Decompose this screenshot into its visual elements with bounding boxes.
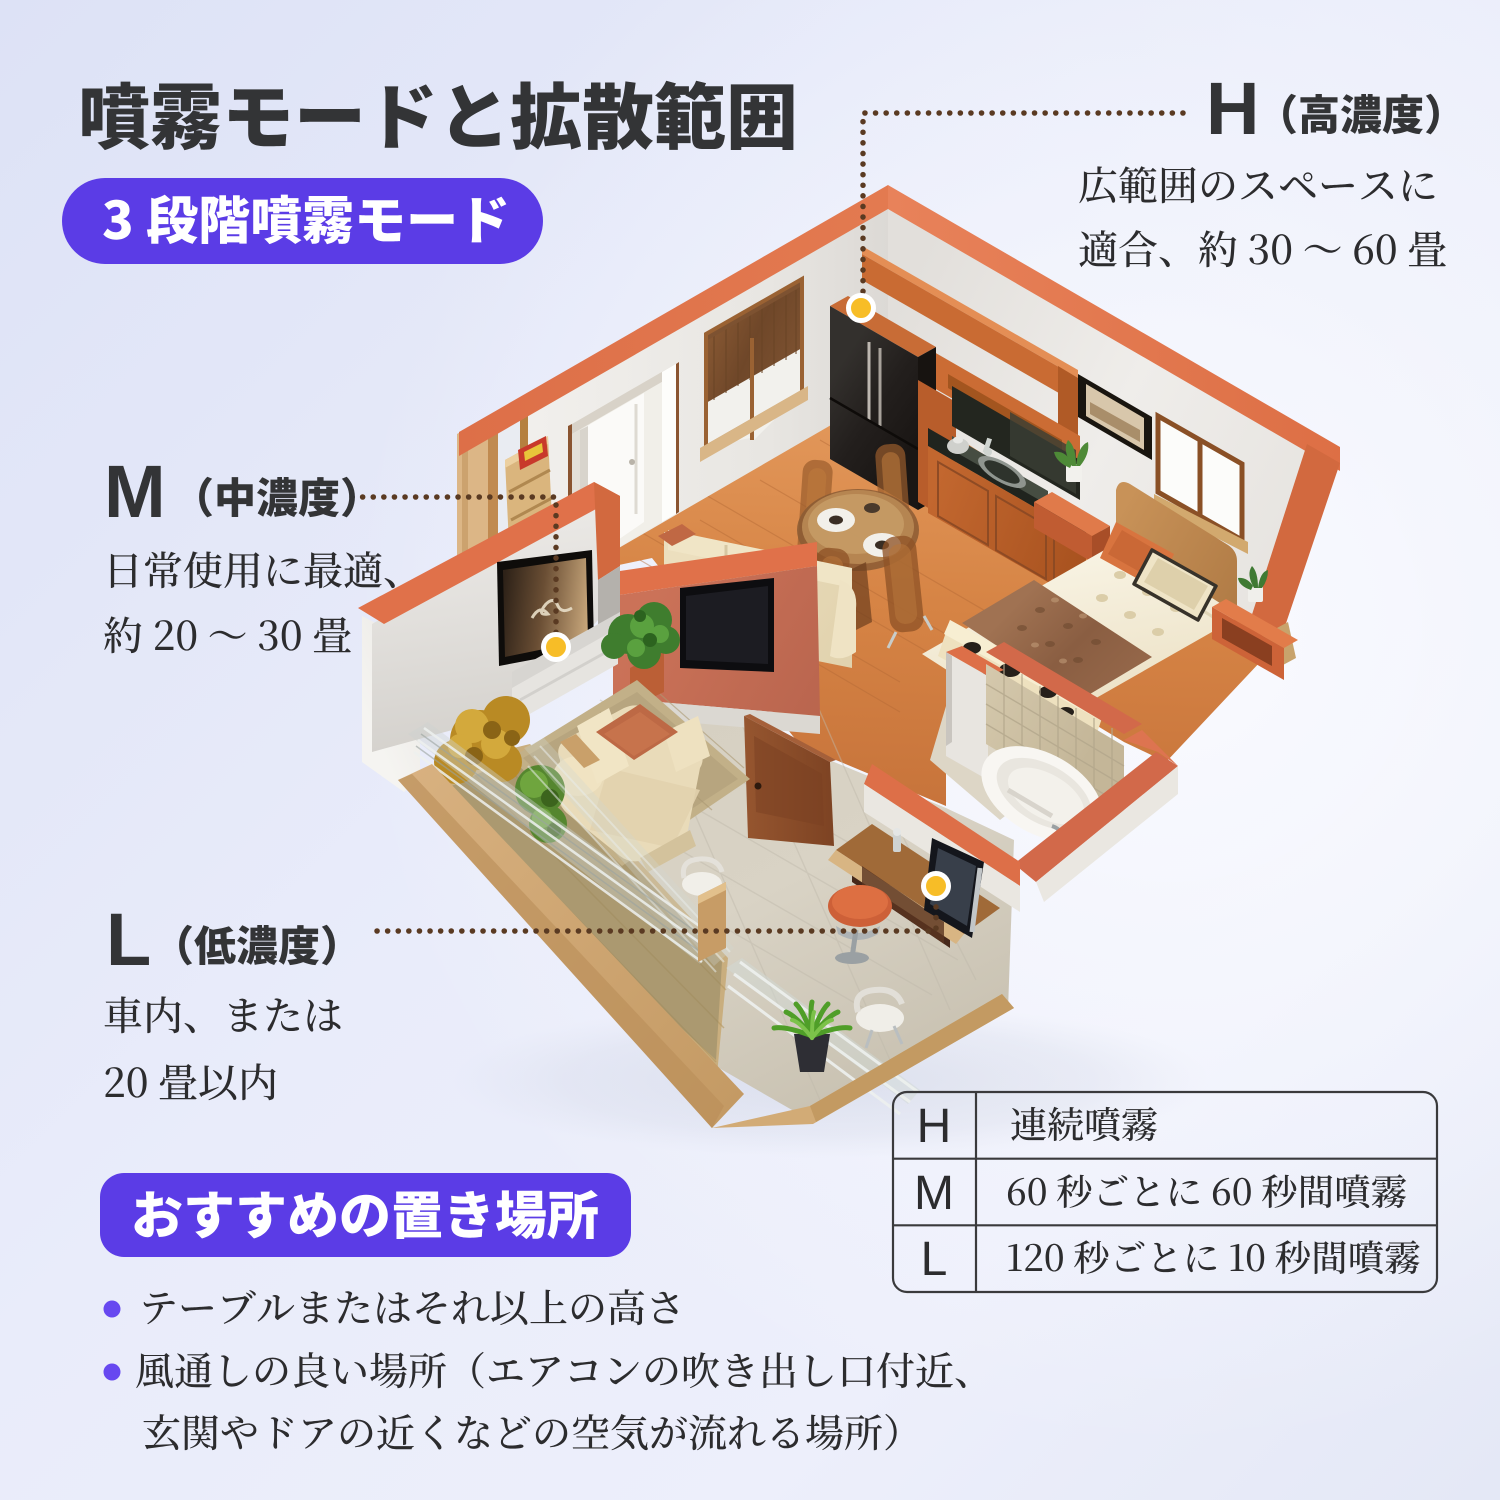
svg-text:L: L [921,1233,948,1286]
svg-text:H: H [1206,67,1259,150]
svg-text:M: M [104,450,166,533]
svg-text:H: H [917,1100,952,1153]
svg-text:L: L [106,898,151,981]
svg-text:M: M [914,1167,954,1220]
